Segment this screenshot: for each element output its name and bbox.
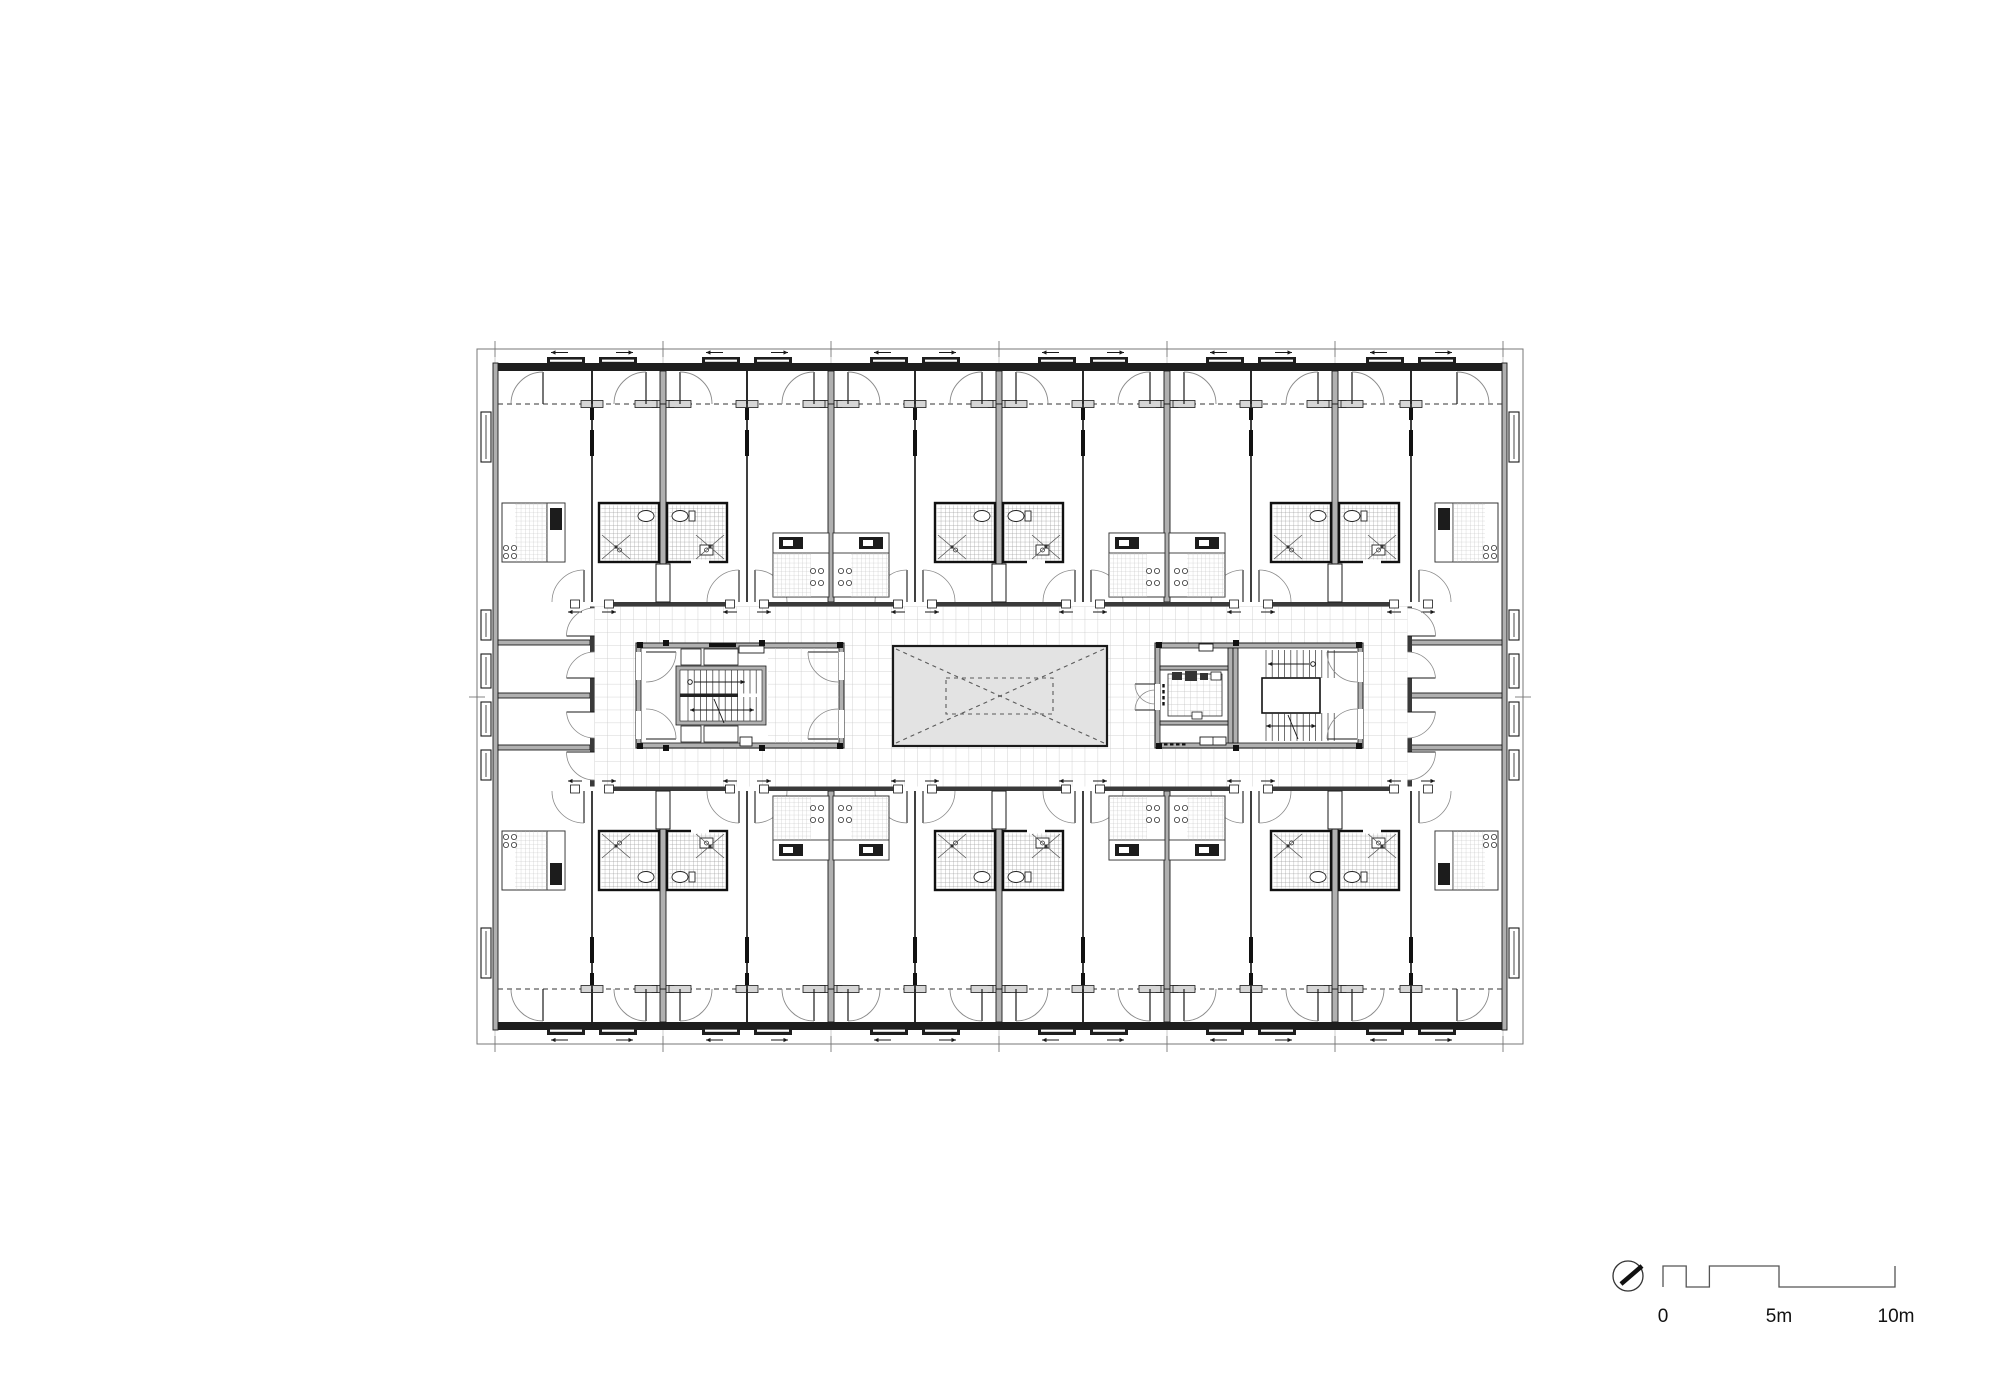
north-indicator	[1613, 1261, 1643, 1291]
scale-label-ten: 10m	[1878, 1306, 1915, 1327]
right-elevator-stair-core	[1135, 640, 1363, 751]
scale-bar: 0 5m 10m	[1658, 1306, 1915, 1327]
atrium-void	[893, 646, 1107, 746]
scale-bar-drawing	[1663, 1266, 1895, 1287]
floor-plan: 0 5m 10m	[0, 0, 2000, 1392]
screenshot-root: 0 5m 10m	[0, 0, 2000, 1392]
left-stair-core	[636, 640, 844, 751]
scale-label-zero: 0	[1658, 1306, 1669, 1327]
scale-label-five: 5m	[1766, 1306, 1792, 1327]
plan-drawing	[469, 341, 1895, 1291]
